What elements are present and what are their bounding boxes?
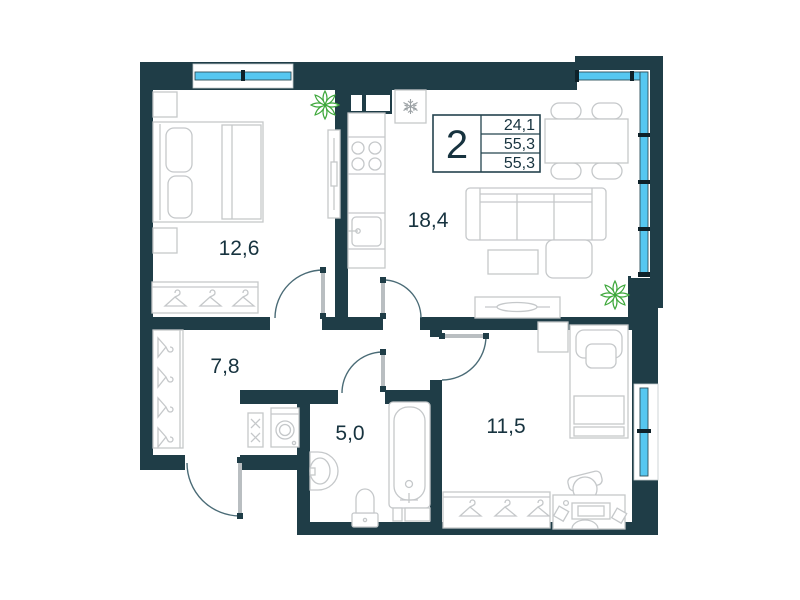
- door-entry: [187, 457, 243, 519]
- washing-machine: [271, 408, 299, 447]
- double-bed: [153, 122, 263, 222]
- door-bathroom: [342, 349, 386, 393]
- area-label-bedroom: 12,6: [219, 237, 260, 260]
- bath-shelf: [393, 508, 402, 521]
- door-kids-room: [439, 333, 489, 380]
- bath-cabinet: [405, 508, 430, 521]
- area-label-kids-room: 11,5: [486, 415, 525, 438]
- window-mullion: [241, 70, 245, 81]
- wardrobe: [443, 492, 550, 528]
- kitchen-sink: [348, 217, 381, 246]
- kids-room-furniture: [443, 322, 628, 529]
- bathroom-sink: [310, 452, 338, 490]
- stat-value: 55,3: [504, 136, 535, 153]
- tv-stand: [475, 297, 560, 318]
- coffee-table: [488, 250, 538, 274]
- nightstand: [153, 92, 177, 117]
- vent-shafts: [351, 95, 390, 111]
- plant: [311, 91, 339, 119]
- door-bedroom: [275, 267, 326, 319]
- kitchen-counter: [348, 113, 385, 268]
- area-label-hallway: 7,8: [210, 355, 239, 378]
- legend: 2 24,1 55,3 55,3: [433, 115, 540, 172]
- bathtub: [389, 402, 430, 508]
- bedroom-window: [193, 64, 293, 88]
- area-label-bathroom: 5,0: [335, 422, 364, 445]
- single-bed: [570, 325, 628, 438]
- nightstand: [538, 322, 568, 352]
- window-mullion: [637, 429, 651, 433]
- chair: [592, 103, 622, 119]
- floor-plan: 12,6 18,4 7,8 5,0 11,5 2 24,1 55,3 55,3: [0, 0, 800, 600]
- hallway-furniture: [153, 330, 299, 448]
- coat-closet: [153, 330, 183, 448]
- kids-room-window: [634, 384, 658, 480]
- door-living: [380, 277, 421, 319]
- area-label-kitchen-living: 18,4: [408, 209, 449, 232]
- toilet: [352, 489, 378, 527]
- dining-table: [545, 103, 628, 179]
- electrical-box: [248, 413, 263, 447]
- rooms-count: 2: [446, 123, 468, 167]
- wardrobe: [152, 282, 258, 313]
- chair: [551, 163, 581, 179]
- nightstand: [153, 228, 177, 253]
- bathroom-furniture: [310, 402, 430, 527]
- chair: [592, 163, 622, 179]
- desk: [553, 470, 627, 529]
- stat-value: 55,3: [504, 155, 535, 172]
- plant: [601, 281, 629, 309]
- stat-value: 24,1: [504, 117, 535, 134]
- fridge: [395, 90, 426, 123]
- bedroom-furniture: [152, 91, 340, 313]
- chair: [551, 103, 581, 119]
- tv-unit: [328, 130, 340, 218]
